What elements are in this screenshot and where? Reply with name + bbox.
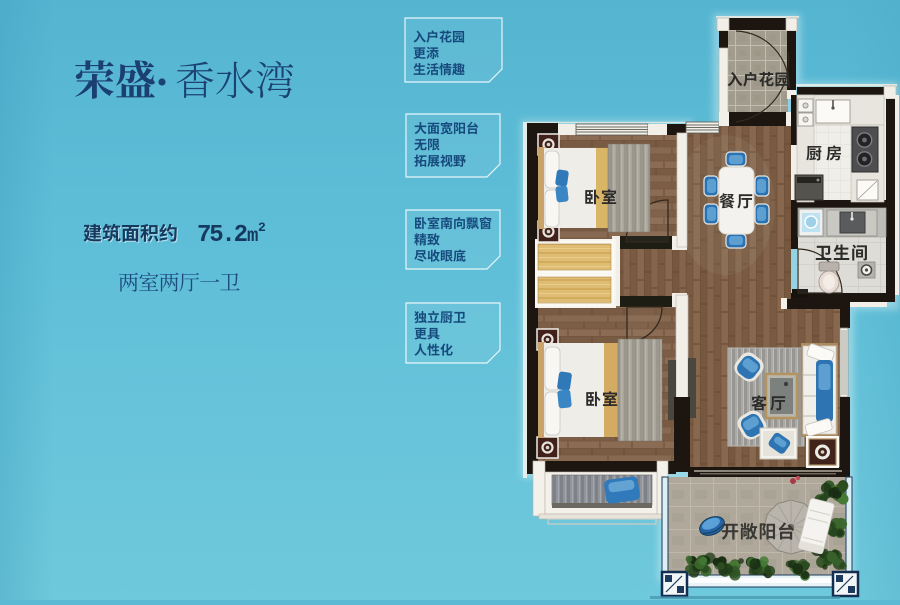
svg-text:2: 2 <box>258 220 266 235</box>
svg-text:m: m <box>247 225 258 247</box>
svg-text:75.2: 75.2 <box>197 222 247 249</box>
